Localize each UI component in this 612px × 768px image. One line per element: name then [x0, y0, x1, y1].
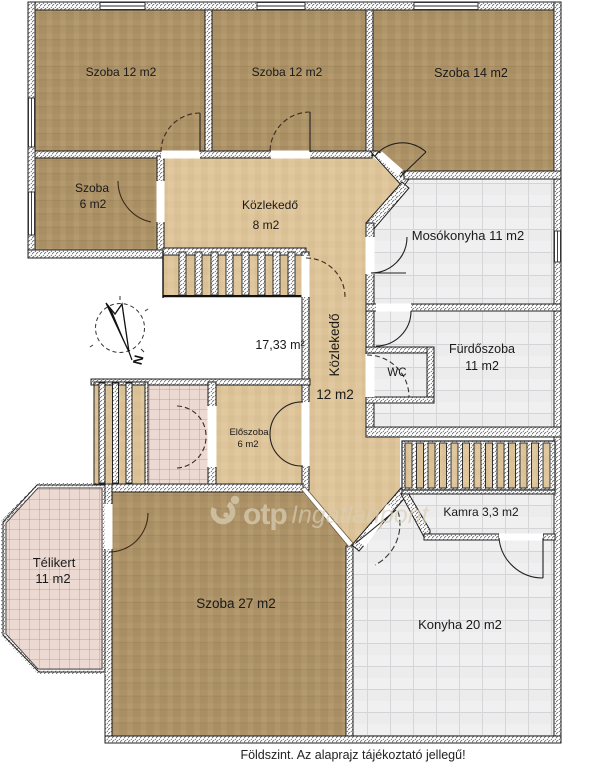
svg-text:Konyha 20 m2: Konyha 20 m2	[418, 617, 502, 632]
svg-text:Szoba 12 m2: Szoba 12 m2	[252, 65, 323, 79]
svg-text:8 m2: 8 m2	[253, 218, 280, 232]
svg-text:6 m2: 6 m2	[80, 197, 107, 211]
svg-text:11 m2: 11 m2	[465, 359, 499, 373]
svg-text:12 m2: 12 m2	[316, 387, 354, 402]
svg-text:Ingatlanpont: Ingatlanpont	[291, 501, 430, 529]
svg-text:Szoba: Szoba	[75, 181, 109, 195]
svg-text:17,33 m²: 17,33 m²	[255, 338, 304, 352]
svg-text:Szoba 12 m2: Szoba 12 m2	[86, 65, 157, 79]
svg-text:Földszint. Az alaprajz tájékoz: Földszint. Az alaprajz tájékoztató jelle…	[240, 748, 465, 762]
svg-text:Előszoba: Előszoba	[229, 427, 269, 438]
svg-text:6 m2: 6 m2	[237, 439, 258, 450]
svg-text:Szoba 14 m2: Szoba 14 m2	[434, 66, 508, 80]
svg-text:Közlekedő: Közlekedő	[242, 198, 298, 212]
svg-text:Télikert: Télikert	[33, 555, 76, 570]
svg-text:11 m2: 11 m2	[35, 571, 70, 586]
svg-text:Közlekedő: Közlekedő	[327, 313, 342, 376]
svg-text:Szoba 27 m2: Szoba 27 m2	[196, 596, 276, 611]
svg-text:Fürdőszoba: Fürdőszoba	[449, 342, 515, 356]
svg-text:Mosókonyha 11 m2: Mosókonyha 11 m2	[412, 228, 525, 243]
svg-text:WC: WC	[387, 367, 406, 379]
svg-text:Kamra 3,3 m2: Kamra 3,3 m2	[443, 505, 519, 519]
svg-text:otp: otp	[243, 498, 287, 531]
